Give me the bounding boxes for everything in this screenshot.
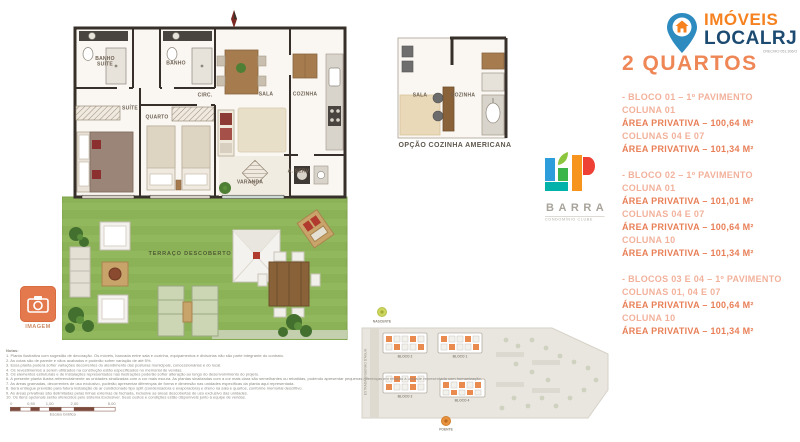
room-label-banho-suite: BANHO SUÍTE	[95, 56, 115, 68]
room-label-suite: SUÍTE	[122, 106, 138, 112]
detail-line-area: ÁREA PRIVATIVA – 100,64 M²	[622, 299, 798, 312]
details-panel: 2 QUARTOS - BLOCO 01 – 1º PAVIMENTO COLU…	[622, 52, 798, 351]
up-logo-name: BARRA	[546, 202, 607, 214]
option-room-label-cozinha: COZINHA	[451, 93, 475, 99]
map-pin-house-icon	[664, 11, 700, 55]
up-logo-mark	[545, 152, 595, 192]
note-line: 10. Os itens opcionais serão oferecidos …	[6, 396, 781, 401]
details-section-bloco-01: - BLOCO 01 – 1º PAVIMENTO COLUNA 01 ÁREA…	[622, 91, 798, 156]
room-label-sala: SALA	[259, 92, 274, 98]
detail-line: COLUNA 01	[622, 182, 798, 195]
page-title: 2 QUARTOS	[622, 52, 798, 76]
option-plan-drawing	[390, 35, 516, 143]
details-section-blocos-03-04: - BLOCOS 03 E 04 – 1º PAVIMENTO COLUNAS …	[622, 273, 798, 338]
detail-line: COLUNAS 01, 04 E 07	[622, 286, 798, 299]
imagem-button[interactable]	[20, 286, 56, 322]
room-label-varanda: VARANDA	[237, 180, 263, 186]
details-section-bloco-02: - BLOCO 02 – 1º PAVIMENTO COLUNA 01 ÁREA…	[622, 169, 798, 260]
detail-line-area: ÁREA PRIVATIVA – 101,01 M²	[622, 195, 798, 208]
scale-bar-label: Escala Gráfica	[10, 413, 115, 417]
compass-north-icon	[227, 10, 241, 28]
notes-heading: Notas:	[6, 349, 781, 354]
detail-line: - BLOCO 01 – 1º PAVIMENTO	[622, 91, 798, 104]
up-logo-subtitle: CONDOMÍNIO CLUBE	[545, 216, 605, 222]
detail-line: COLUNAS 04 E 07	[622, 130, 798, 143]
detail-line: - BLOCOS 03 E 04 – 1º PAVIMENTO	[622, 273, 798, 286]
room-label-circ: CIRC.	[198, 93, 213, 99]
detail-line-area: ÁREA PRIVATIVA – 101,34 M²	[622, 143, 798, 156]
option-plan-caption: OPÇÃO COZINHA AMERICANA	[383, 142, 527, 149]
room-label-banho: BANHO	[166, 61, 186, 67]
scale-ticks: 0 0,50 1,00 2,00 5,00	[10, 402, 122, 407]
detail-line-area: ÁREA PRIVATIVA – 101,34 M²	[622, 325, 798, 338]
scale-bar-segments	[10, 407, 115, 411]
detail-line: - BLOCO 02 – 1º PAVIMENTO	[622, 169, 798, 182]
scale-bar: 0 0,50 1,00 2,00 5,00 Escala Gráfica	[10, 402, 190, 426]
detail-line: COLUNA 10	[622, 312, 798, 325]
brand-name-bottom: LOCALRJ	[704, 29, 797, 48]
camera-icon	[27, 295, 49, 313]
detail-line-area: ÁREA PRIVATIVA – 100,64 M²	[622, 117, 798, 130]
detail-line-area: ÁREA PRIVATIVA – 100,64 M²	[622, 221, 798, 234]
imagem-button-label: IMAGEM	[9, 324, 67, 330]
room-label-aserv: A. SERV.	[288, 169, 311, 175]
detail-line-area: ÁREA PRIVATIVA – 101,34 M²	[622, 247, 798, 260]
detail-line: COLUNAS 04 E 07	[622, 208, 798, 221]
brand-logo: IMÓVEIS LOCALRJ CRECI/RJ 051.306/O	[664, 11, 797, 56]
room-label-quarto: QUARTO	[145, 115, 168, 121]
up-barra-logo: BARRA CONDOMÍNIO CLUBE	[545, 152, 607, 225]
room-label-cozinha: COZINHA	[293, 92, 317, 98]
site-marker-label-nascente: NASCENTE	[373, 320, 391, 323]
room-label-terraco: TERRAÇO DESCOBERTO	[148, 251, 231, 257]
option-room-label-sala: SALA	[413, 93, 428, 99]
detail-line: COLUNA 01	[622, 104, 798, 117]
detail-line: COLUNA 10	[622, 234, 798, 247]
brand-name-top: IMÓVEIS	[704, 11, 797, 28]
